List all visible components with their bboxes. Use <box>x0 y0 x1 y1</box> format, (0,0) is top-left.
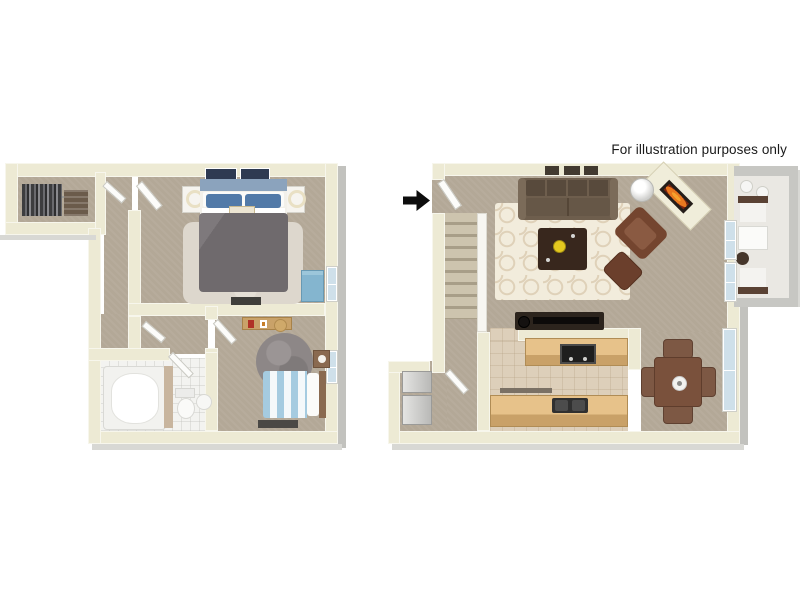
patio-chair-2 <box>738 268 768 294</box>
tv-screen <box>533 317 599 324</box>
dining-table <box>654 357 702 407</box>
dining-chair-top <box>663 339 693 359</box>
armchair-cushion <box>623 216 658 251</box>
speaker <box>518 316 530 328</box>
entry-arrow-icon <box>403 188 430 213</box>
sofa-seat-cushions <box>526 198 610 216</box>
table-decor-dot <box>571 234 575 238</box>
chair-seat <box>740 268 766 287</box>
main-floor-plan <box>0 0 800 600</box>
wall-kitchen-left <box>477 332 490 431</box>
wall-bottom <box>388 431 740 444</box>
appliance-upper <box>402 371 432 393</box>
plan-edge-right <box>740 307 748 445</box>
sink-basin <box>572 400 585 411</box>
chair-back <box>738 287 768 294</box>
window-pane <box>726 264 735 282</box>
kitchen-mat <box>500 388 552 393</box>
stove-knob <box>583 357 587 361</box>
console-item-2 <box>564 166 580 175</box>
chair-seat <box>740 203 766 222</box>
patio-fixture-1 <box>740 180 753 193</box>
patio-chair-1 <box>738 196 768 222</box>
plan-edge-bottom <box>392 444 744 450</box>
coffee-table <box>538 228 587 270</box>
sofa-back-cushions <box>526 180 610 196</box>
floorplan-image: For illustration purposes only <box>0 0 800 600</box>
console-item-1 <box>545 166 559 175</box>
sofa <box>518 178 618 220</box>
patio-wall-bottom <box>734 298 798 307</box>
living-room-window-2 <box>724 262 737 302</box>
kitchen-opening <box>490 328 518 341</box>
living-room-window-1 <box>724 220 737 260</box>
window-pane <box>726 283 735 301</box>
kitchen-sink <box>552 398 588 413</box>
patio-grill <box>736 252 749 265</box>
table-decor-dot <box>546 258 550 262</box>
sofa-arm-left <box>518 178 526 220</box>
dining-chair-bottom <box>663 404 693 424</box>
window-pane <box>726 222 735 240</box>
plate-center <box>677 381 682 386</box>
appliance-stack <box>402 371 432 425</box>
side-table-lamp <box>630 178 654 202</box>
tv-console <box>515 312 604 330</box>
window-pane <box>726 241 735 259</box>
wall-nook-left <box>388 361 400 444</box>
dining-window <box>722 328 737 412</box>
stove-knob <box>569 357 573 361</box>
dining-plate <box>672 376 687 391</box>
window-pane <box>724 330 735 370</box>
wall-kitchen-right <box>628 328 641 370</box>
appliance-lower <box>402 395 432 425</box>
patio-table <box>738 226 768 250</box>
patio-wall-right <box>789 166 798 307</box>
stove-cooktop <box>560 344 596 364</box>
sofa-arm-right <box>610 178 618 220</box>
wall-left-lower <box>432 213 445 373</box>
window-pane <box>724 371 735 411</box>
chair-back <box>738 196 768 203</box>
table-flowers <box>553 240 566 253</box>
staircase <box>445 213 477 319</box>
stair-stringer-wall <box>477 213 487 332</box>
wall-left-upper <box>432 163 445 180</box>
console-item-3 <box>584 166 598 175</box>
sink-basin <box>555 400 568 411</box>
fireplace-fire <box>664 184 689 209</box>
